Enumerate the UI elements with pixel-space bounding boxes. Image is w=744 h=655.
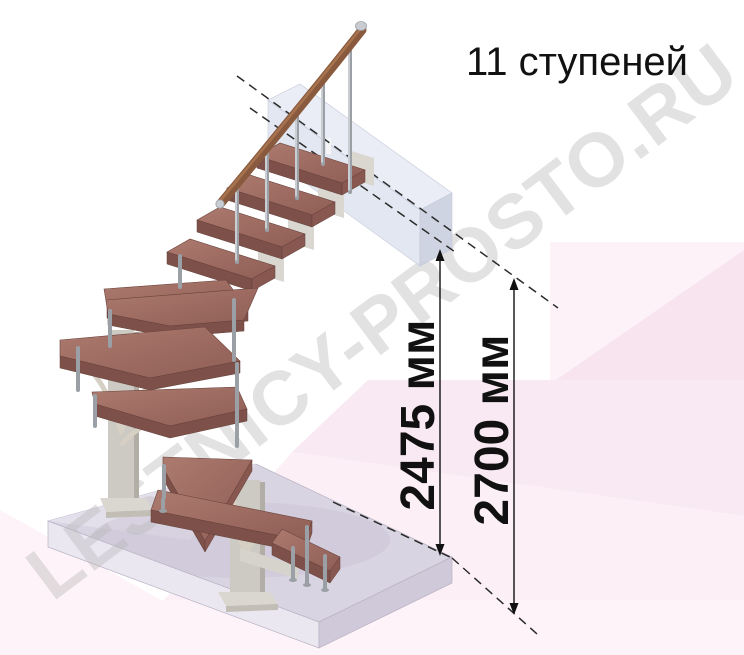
staircase-diagram-canvas: LESTNICY-PROSTO.RU	[0, 0, 744, 655]
dimension-2475-label: 2475 мм	[392, 319, 445, 510]
handrail-top-cap	[356, 22, 367, 31]
dimension-2700-label: 2700 мм	[466, 334, 519, 525]
handrail-end-cap	[216, 200, 224, 208]
staircase-illustration: LESTNICY-PROSTO.RU	[0, 0, 744, 655]
page-title: 11 ступеней	[466, 40, 688, 84]
